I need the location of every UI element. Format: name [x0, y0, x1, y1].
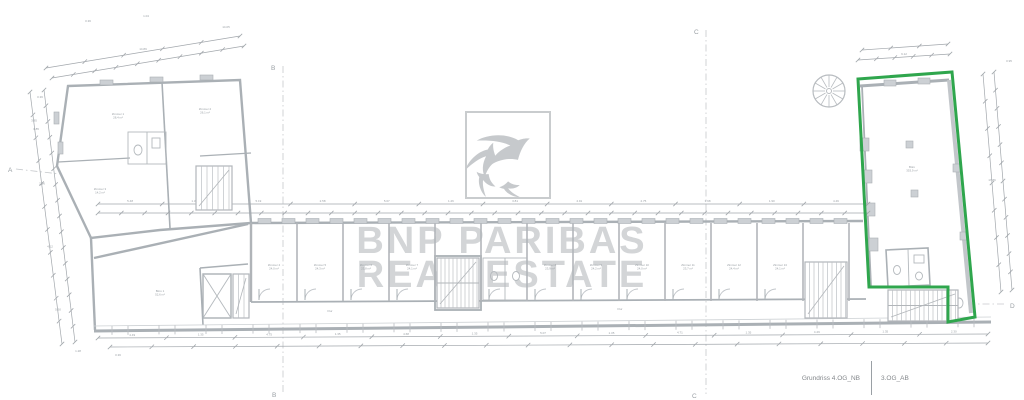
room-label: 52,6 m²	[155, 292, 165, 296]
dimension-value: 1.35	[745, 330, 751, 334]
column	[906, 141, 913, 148]
dimension-line	[862, 44, 948, 50]
room-label: 28,4 m²	[113, 115, 123, 119]
axis-d-label: D	[1010, 303, 1015, 310]
window	[786, 219, 799, 224]
door-swing-arc	[719, 289, 730, 300]
dimension-value: 0.95	[1006, 59, 1012, 63]
spiral-stair-icon	[813, 75, 845, 107]
room-label: 26,1 m²	[200, 110, 210, 114]
room-label: 23,9 m²	[545, 266, 555, 270]
dimension-value: 5.07	[384, 199, 390, 203]
window	[258, 219, 271, 224]
room-label: 24,0 m²	[269, 266, 279, 270]
spiral-stair-spoke	[821, 77, 827, 87]
room-label: 353,9 m²	[906, 168, 917, 172]
window	[834, 219, 847, 224]
window	[330, 219, 343, 224]
floor-plan-page: BNP PARIBAS REAL ESTATE A B B C C D	[0, 0, 1024, 400]
plan-title: Grundriss 4.OG_NB	[778, 375, 860, 382]
spiral-stair-spoke	[831, 77, 837, 87]
window	[738, 219, 751, 224]
dimension-value: 1.26	[448, 199, 454, 203]
spiral-stair-spoke	[821, 94, 827, 104]
floor-plan-canvas: BNP PARIBAS REAL ESTATE A B B C C D	[0, 0, 1024, 400]
dimension-value: 5.07	[540, 331, 546, 335]
dimension-value: 1.90	[769, 199, 775, 203]
window	[354, 219, 367, 224]
spiral-stair-spoke	[832, 83, 842, 89]
dimension-value: 3.98	[705, 199, 711, 203]
dimension-value: 4.12	[47, 245, 53, 249]
window	[522, 219, 535, 224]
spiral-stair-spoke	[831, 94, 837, 104]
dimension-value: 9.12	[901, 52, 907, 56]
spiral-stair-spoke	[815, 93, 825, 99]
dimension-value: 1.28	[75, 349, 81, 353]
dimension-value: 2.30	[951, 329, 957, 333]
window	[810, 219, 823, 224]
dimension-value: 5.19	[255, 199, 261, 203]
dimension-value: 4.68	[403, 332, 409, 336]
dimension-value: 3.85	[33, 127, 39, 131]
room-label: 24,1 m²	[407, 266, 417, 270]
dimension-line	[110, 343, 988, 347]
window	[690, 219, 703, 224]
dimension-value: 4.91	[576, 199, 582, 203]
title-divider	[871, 361, 872, 395]
sheet-label: 3.OG_AB	[881, 375, 909, 382]
window	[282, 219, 295, 224]
window	[642, 219, 655, 224]
dimension-value: 2.75	[640, 199, 646, 203]
window	[498, 219, 511, 224]
bird-icon	[498, 180, 522, 197]
dimension-value: 1.35	[609, 331, 615, 335]
dimension-value: 4.49	[814, 330, 820, 334]
window	[714, 219, 727, 224]
window	[570, 219, 583, 224]
room-label: Flur	[328, 309, 333, 313]
room-label: 24,4 m²	[729, 266, 739, 270]
dimension-value: 4.49	[129, 333, 135, 337]
axis-a-line	[16, 169, 60, 174]
door-swing-arc	[259, 289, 270, 300]
room-label: 24,2 m²	[591, 266, 601, 270]
wing-bottom-wall	[94, 322, 991, 331]
highlighted-unit-interior	[860, 78, 971, 313]
bnp-paribas-birds-logo-icon	[465, 123, 535, 198]
door-swing-arc	[765, 289, 776, 300]
room-label: Flur	[618, 307, 623, 311]
dimension-value: 4.71	[677, 331, 683, 335]
axis-b-bottom-label: B	[272, 392, 276, 399]
spiral-stair-spoke	[832, 93, 842, 99]
window	[402, 219, 415, 224]
dimension-value: 5.48	[127, 199, 133, 203]
dimension-value: 14.05	[222, 25, 230, 29]
window	[666, 219, 679, 224]
dimension-value: 0.36	[115, 353, 121, 357]
dimension-value: 3.81	[512, 199, 518, 203]
window	[618, 219, 631, 224]
window	[762, 219, 775, 224]
dimension-value: 1.35	[335, 332, 341, 336]
dimension-value: 1.35	[882, 330, 888, 334]
door-swing-arc	[305, 289, 316, 300]
axis-b-top-label: B	[271, 65, 275, 72]
dimension-line	[46, 36, 240, 68]
dimension-value: 2.58	[320, 199, 326, 203]
dimension-value: 4.49	[833, 199, 839, 203]
dimension-value: 1.04	[143, 14, 149, 18]
room-label: 14,2 m²	[95, 190, 105, 194]
axis-c-bottom-label: C	[692, 393, 697, 400]
window	[546, 219, 559, 224]
room-label: 24,1 m²	[775, 266, 785, 270]
window	[378, 219, 391, 224]
dimension-value: 0.36	[37, 95, 43, 99]
door-swing-arc	[673, 289, 684, 300]
window	[450, 219, 463, 224]
column	[911, 190, 918, 197]
room-label: 24,3 m²	[315, 266, 325, 270]
dimension-value: 1.35	[198, 333, 204, 337]
window	[474, 219, 487, 224]
room-label: 23,8 m²	[361, 266, 371, 270]
room-label: 24,0 m²	[637, 266, 647, 270]
room-label: 23,7 m²	[683, 266, 693, 270]
dimension-value: 3.85	[31, 119, 37, 123]
window	[306, 219, 319, 224]
dimension-value: 0.36	[85, 19, 91, 23]
axis-a-label: A	[8, 167, 13, 174]
window	[594, 219, 607, 224]
dimension-value: 1.35	[472, 332, 478, 336]
window	[426, 219, 439, 224]
watermark-line2: REAL ESTATE	[357, 254, 648, 296]
dimension-value: 17.86	[988, 178, 996, 182]
axis-c-top-label: C	[694, 29, 699, 36]
dimension-value: 5.60	[55, 308, 61, 312]
title-block: Grundriss 4.OG_NB 3.OG_AB	[778, 358, 1024, 398]
left-block-outline	[57, 80, 251, 238]
dimension-value: 2.96	[39, 182, 45, 186]
dimension-value: 14.89	[139, 47, 147, 51]
spiral-stair-spoke	[815, 83, 825, 89]
